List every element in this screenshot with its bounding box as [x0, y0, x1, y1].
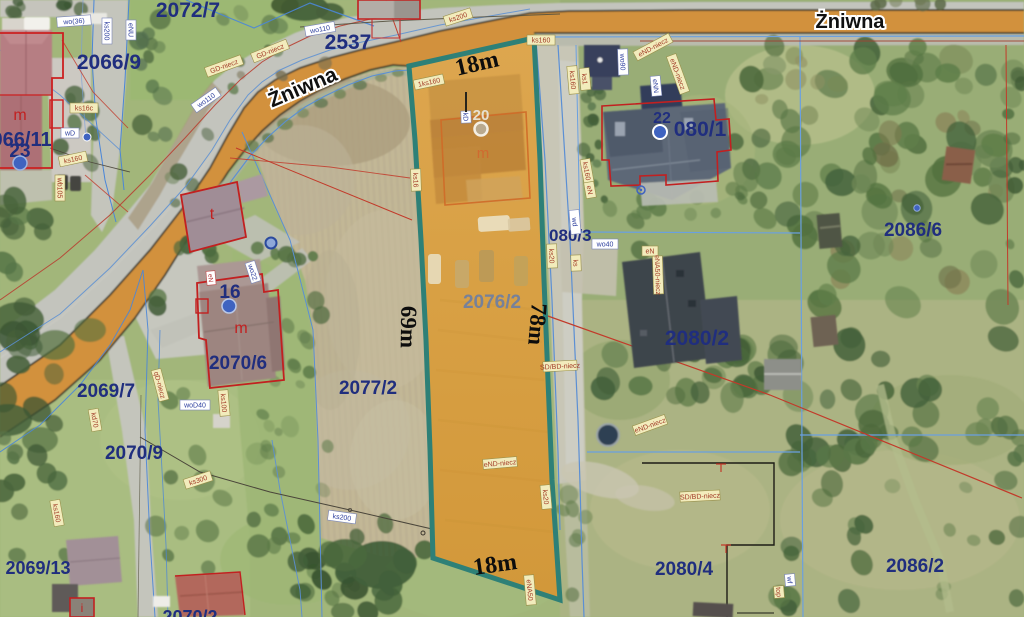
svg-text:2076/2: 2076/2 [463, 292, 521, 313]
svg-text:ks160: ks160 [532, 38, 551, 45]
svg-text:wo90: wo90 [618, 53, 626, 71]
svg-text:eNU: eNU [126, 23, 133, 37]
svg-text:eNA50-niecz: eNA50-niecz [653, 255, 661, 296]
svg-text:top: top [774, 587, 782, 597]
svg-text:2086/2: 2086/2 [886, 556, 944, 577]
svg-text:ks: ks [571, 259, 578, 267]
svg-text:wD: wD [64, 131, 75, 138]
svg-text:kD: kD [461, 113, 468, 122]
svg-text:2070/9: 2070/9 [105, 443, 163, 464]
svg-text:ks1: ks1 [580, 73, 588, 85]
svg-text:2070/2: 2070/2 [162, 607, 217, 617]
svg-text:2537: 2537 [325, 31, 372, 54]
svg-text:i: i [81, 601, 84, 615]
svg-text:ks20: ks20 [547, 249, 555, 264]
svg-text:wd: wd [570, 216, 578, 227]
svg-text:wo40: wo40 [596, 242, 614, 249]
svg-text:woD40: woD40 [183, 403, 206, 410]
svg-text:ks200: ks200 [102, 22, 109, 41]
svg-text:t: t [210, 206, 215, 223]
svg-text:2069/7: 2069/7 [77, 381, 135, 402]
svg-text:eNN: eNN [651, 79, 659, 94]
svg-text:080/1: 080/1 [674, 118, 727, 141]
svg-text:m: m [477, 145, 490, 162]
svg-text:Żniwna: Żniwna [816, 10, 886, 33]
svg-text:2080/4: 2080/4 [655, 559, 714, 580]
svg-text:2066/9: 2066/9 [77, 51, 141, 74]
svg-text:eN: eN [206, 274, 214, 283]
svg-text:2086/6: 2086/6 [884, 220, 942, 241]
svg-text:ks16: ks16 [411, 173, 419, 188]
svg-text:20: 20 [473, 107, 490, 124]
svg-text:ks16c: ks16c [75, 106, 94, 113]
svg-text:2070/6: 2070/6 [209, 353, 267, 374]
svg-text:69m: 69m [396, 306, 422, 349]
svg-text:m: m [234, 320, 247, 337]
svg-text:2080/2: 2080/2 [665, 327, 729, 350]
svg-text:78m: 78m [523, 302, 552, 346]
svg-text:wb105: wb105 [55, 177, 62, 199]
svg-text:m: m [13, 107, 26, 124]
svg-text:2072/7: 2072/7 [156, 0, 220, 22]
svg-text:2069/13: 2069/13 [5, 558, 70, 578]
svg-text:ks20: ks20 [541, 489, 549, 504]
svg-text:2077/2: 2077/2 [339, 378, 397, 399]
svg-text:wf: wf [785, 575, 793, 584]
svg-text:080/3: 080/3 [549, 226, 592, 245]
